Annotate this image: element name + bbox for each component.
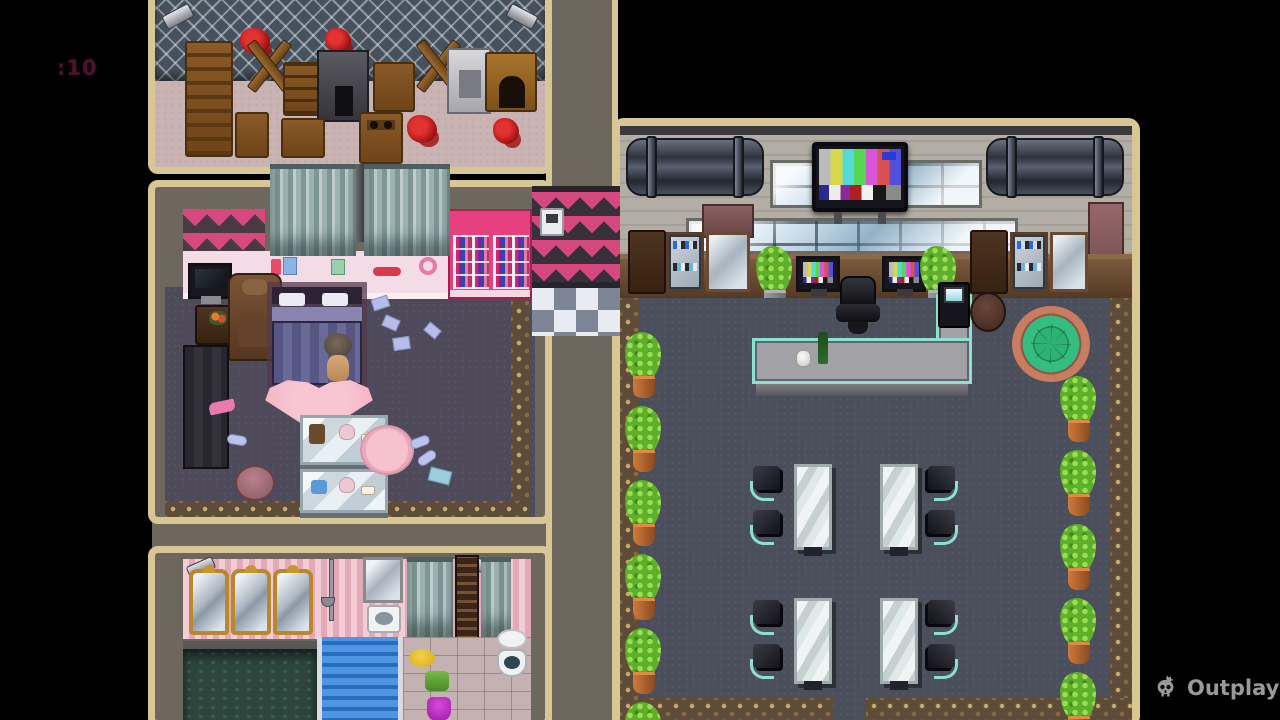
monitor-color-bars xyxy=(889,262,919,283)
shower-curtain xyxy=(407,557,453,637)
pink-shelf-unit xyxy=(448,209,532,299)
round-table xyxy=(970,292,1006,332)
glass-table xyxy=(794,598,832,684)
wall-intercom xyxy=(540,208,564,236)
potted-plant xyxy=(625,628,663,694)
glass-table xyxy=(880,464,918,550)
glass-cabinet xyxy=(666,232,704,292)
pillow xyxy=(279,293,305,306)
blue-tile-mat xyxy=(317,637,403,720)
atm-screen xyxy=(944,287,964,303)
shower-curtain xyxy=(481,557,511,637)
office-chair xyxy=(836,276,880,340)
corridor-checker-floor xyxy=(532,288,620,336)
air-duct-pipe xyxy=(626,138,764,196)
curtain-center-pole xyxy=(356,164,364,242)
watermark: Outplayed xyxy=(1152,674,1280,701)
potted-plant xyxy=(625,480,663,546)
room-bathroom xyxy=(148,546,552,720)
bottle-shelf xyxy=(453,235,489,289)
cabinet-bottles xyxy=(1017,263,1041,271)
salon-chair xyxy=(750,600,784,640)
round-pink-rug xyxy=(360,425,414,475)
tv-stand-leg xyxy=(878,212,886,224)
yellow-basin xyxy=(409,649,435,667)
bath-pool xyxy=(183,641,317,720)
wooden-table xyxy=(281,118,325,158)
chair-headrest xyxy=(242,279,268,295)
teapot xyxy=(339,424,355,440)
sheet-fold xyxy=(272,307,362,321)
shower-pole xyxy=(329,559,334,621)
salon-chair xyxy=(924,466,958,506)
air-duct-pipe xyxy=(986,138,1124,196)
curtain-panel xyxy=(364,164,450,256)
cabinet-bottles xyxy=(673,241,697,249)
blood-splatter xyxy=(493,118,519,144)
bar-counter-front xyxy=(756,384,968,396)
glass-table xyxy=(794,464,832,550)
room-salon xyxy=(612,118,1140,720)
kennel-opening xyxy=(499,76,525,108)
sink-mirror xyxy=(363,557,403,603)
boots xyxy=(309,424,325,444)
timer-text: :10 xyxy=(57,56,98,80)
salon-chair xyxy=(924,644,958,684)
purple-basin xyxy=(427,697,451,720)
room-dungeon xyxy=(148,0,552,174)
green-book xyxy=(331,259,345,275)
display-table xyxy=(300,469,388,513)
wooden-chair xyxy=(235,112,269,158)
potted-plant xyxy=(1060,376,1098,442)
blue-box xyxy=(283,257,297,275)
wall-column-upper xyxy=(546,0,618,192)
phone-handset xyxy=(419,257,437,275)
stocks-holes xyxy=(367,120,395,130)
shelf-base xyxy=(450,290,530,297)
atm-terminal xyxy=(938,282,970,328)
salon-chair xyxy=(750,644,784,684)
sink-basin xyxy=(375,612,393,625)
gold-mirror xyxy=(231,569,271,635)
teacups xyxy=(361,486,375,495)
room-divider-curtain xyxy=(270,164,450,256)
potted-plant xyxy=(1060,672,1098,720)
teapot xyxy=(339,477,355,493)
toilet xyxy=(497,629,527,649)
monitor-stand xyxy=(897,289,913,296)
curtain-panel xyxy=(270,164,356,256)
sink xyxy=(367,605,401,633)
salon-chair xyxy=(924,510,958,550)
tv-stand xyxy=(201,296,221,304)
game-viewport[interactable]: :10 Outplayed xyxy=(0,0,1280,720)
white-mug xyxy=(796,350,811,367)
cabinet-bottles xyxy=(1017,241,1041,249)
monitor-color-bars xyxy=(803,262,833,283)
device-seat xyxy=(459,70,481,98)
press-slot xyxy=(335,86,353,116)
heart-wallpaper xyxy=(183,209,265,255)
big-tv xyxy=(812,142,908,212)
green-basin xyxy=(425,671,449,691)
potted-plant xyxy=(625,702,663,720)
salon-chair xyxy=(750,510,784,550)
salon-chair xyxy=(750,466,784,506)
bottle-shelf xyxy=(493,235,529,289)
gold-mirror xyxy=(273,569,313,635)
salon-chair xyxy=(924,600,958,640)
blood-splatter xyxy=(325,28,351,52)
pouf-stool xyxy=(235,465,275,501)
glass-cabinet xyxy=(1010,232,1048,292)
blue-item xyxy=(311,480,327,494)
mirror-cabinet xyxy=(1050,232,1088,292)
tv-screen xyxy=(195,269,225,288)
tv-stand-leg xyxy=(834,212,842,224)
wine-bottle xyxy=(818,332,828,364)
potted-plant xyxy=(625,406,663,472)
bedroom-tv xyxy=(188,263,232,299)
roulette-table xyxy=(1012,306,1090,382)
skull-crown-icon xyxy=(1152,674,1179,701)
scattered-paper xyxy=(392,336,411,351)
gold-mirror xyxy=(189,569,229,635)
cabinet-bottles xyxy=(673,263,697,271)
salon-wall-cap xyxy=(620,126,1132,135)
pillow xyxy=(322,293,348,306)
character-sprite xyxy=(323,333,353,385)
wall-column-lower xyxy=(546,334,618,720)
monitor-stand xyxy=(811,289,827,296)
wood-cabinet xyxy=(628,230,666,294)
mirror-cabinet xyxy=(706,232,750,292)
flower-vase xyxy=(209,311,227,325)
bedroom-carpet-border-right xyxy=(511,287,529,517)
torture-rack xyxy=(185,41,233,157)
potted-plant xyxy=(1060,450,1098,516)
monitor xyxy=(796,256,840,292)
character-hair xyxy=(324,333,352,357)
toilet-water xyxy=(504,656,520,669)
bar-counter xyxy=(752,338,972,384)
glass-table xyxy=(880,598,918,684)
intercom-screen xyxy=(546,214,558,223)
potted-plant xyxy=(625,554,663,620)
character-body xyxy=(327,355,349,381)
pillory-stocks xyxy=(359,112,403,164)
chair-seat xyxy=(238,317,272,347)
salon-carpet-border-right xyxy=(1110,298,1132,720)
ornate-pillar xyxy=(455,555,479,641)
wood-cabinet xyxy=(970,230,1008,294)
corridor-heart-wall xyxy=(532,186,620,288)
potted-plant xyxy=(625,332,663,398)
watermark-label: Outplayed xyxy=(1187,676,1280,700)
toilet-bowl xyxy=(497,649,527,677)
tv-logo-badge xyxy=(882,152,896,160)
kennel xyxy=(485,52,537,112)
red-slippers xyxy=(373,267,401,276)
potted-plant xyxy=(1060,598,1098,664)
potted-plant xyxy=(1060,524,1098,590)
blood-splatter xyxy=(407,115,437,143)
